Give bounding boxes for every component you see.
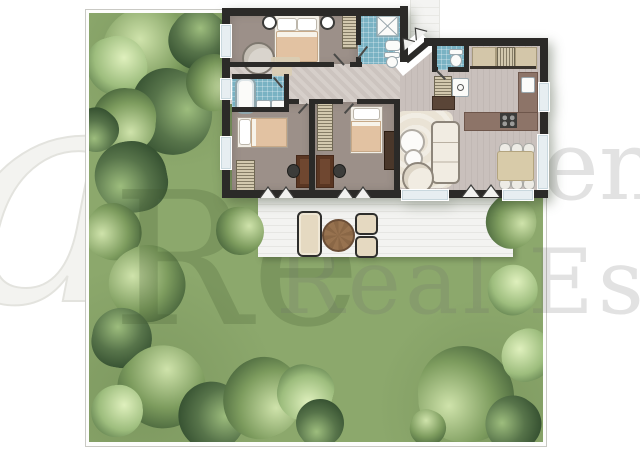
pillow (277, 18, 297, 31)
appliance-dial (457, 84, 464, 91)
pillow (353, 108, 380, 120)
interior-wall (232, 74, 272, 79)
hall-mat (272, 67, 292, 76)
sideboard (432, 96, 455, 110)
wardrobe (236, 160, 255, 192)
interior-wall (309, 99, 315, 190)
shower (376, 15, 399, 37)
interior-wall (394, 99, 400, 190)
bed-blanket (351, 121, 381, 152)
desk (316, 155, 334, 188)
exterior-wall (424, 38, 548, 46)
toilet-bowl (386, 56, 398, 68)
interior-wall (230, 62, 334, 67)
wardrobe (342, 14, 357, 49)
sofa (431, 121, 460, 184)
wardrobe (317, 102, 333, 151)
toilet-bowl (450, 54, 462, 67)
interior-wall (356, 13, 361, 45)
french-door (336, 186, 372, 199)
interior-wall (311, 99, 343, 104)
window (401, 189, 449, 201)
interior-wall (356, 57, 361, 67)
closet-edge (470, 66, 536, 69)
window (502, 189, 534, 201)
desk-chair (333, 164, 346, 178)
interior-wall (464, 46, 469, 72)
bedside-lamp (262, 15, 277, 30)
kitchen-sink (521, 77, 535, 93)
window (537, 134, 549, 190)
bed-blanket (251, 118, 287, 147)
dining-table (497, 151, 534, 181)
site-plan-canvas: a Re en Real Estat (0, 0, 640, 452)
house-floor-plan (0, 0, 640, 452)
french-door (259, 186, 295, 199)
window (220, 78, 232, 100)
desk-chair (287, 164, 300, 178)
window (538, 82, 550, 112)
bedside-lamp (320, 15, 335, 30)
pillow (297, 18, 317, 31)
window (220, 24, 232, 58)
stove (500, 113, 517, 128)
exterior-wall (222, 8, 408, 16)
interior-wall (289, 99, 299, 104)
french-door (461, 184, 501, 198)
interior-wall (232, 107, 289, 112)
pillow (239, 119, 251, 145)
window (220, 136, 232, 170)
